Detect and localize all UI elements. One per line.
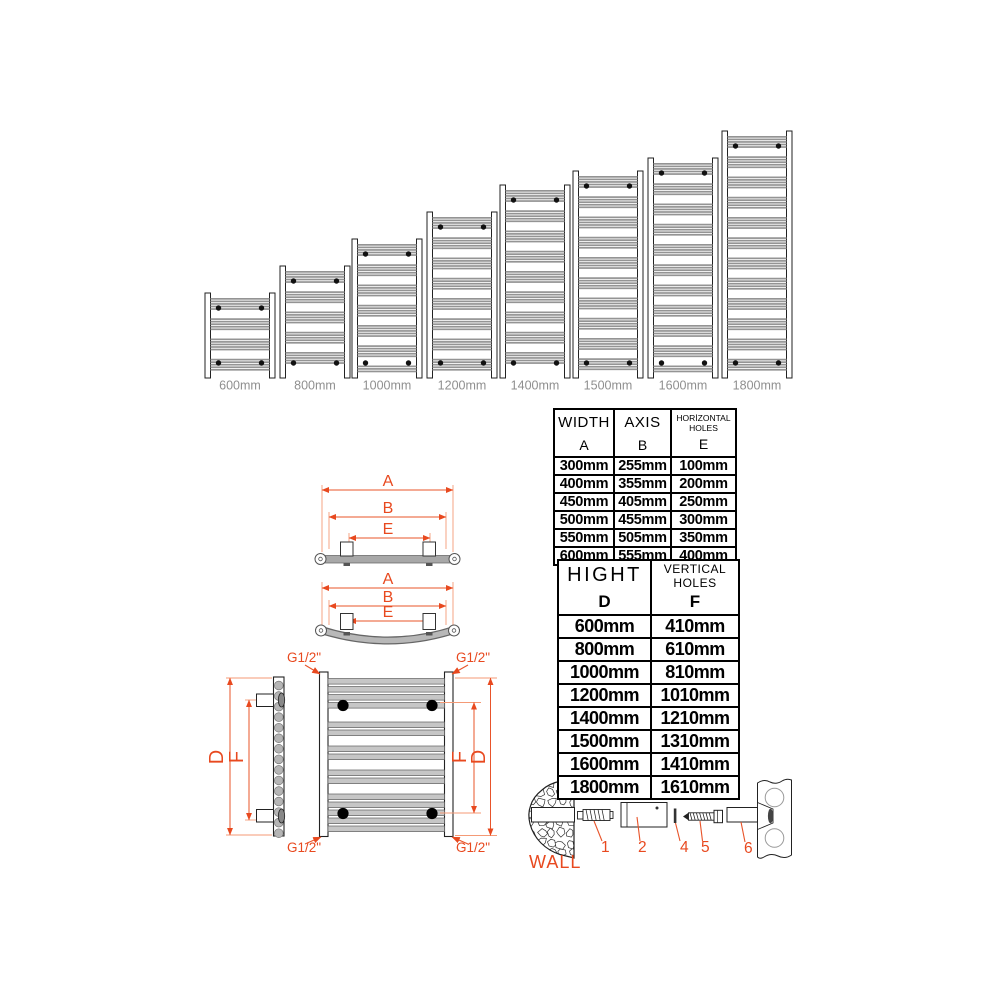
column-header: HORİZONTAL HOLESE (671, 409, 736, 457)
table-cell: 405mm (614, 493, 671, 511)
mounting-dot (627, 360, 632, 365)
mounting-dot (659, 360, 664, 365)
mounting-dot (702, 360, 707, 365)
radiator-size-label: 1000mm (363, 379, 412, 393)
radiator-size-label: 600mm (219, 379, 261, 393)
table-row: 1600mm1410mm (558, 753, 739, 776)
part-number-2: 2 (638, 839, 647, 856)
wall-bracket (257, 810, 274, 823)
mounting-dot (554, 197, 559, 202)
front-view-left-tube (320, 672, 329, 837)
wall-label: WALL (529, 852, 581, 872)
dim-label-b: B (383, 500, 394, 517)
part-wall-plug (578, 810, 614, 821)
column-header-letter: F (652, 592, 738, 612)
table-row: 600mm410mm (558, 615, 739, 638)
mounting-dot (733, 360, 738, 365)
wall-bracket (423, 542, 436, 556)
part-number-5: 5 (701, 839, 710, 856)
table-cell: 1310mm (651, 730, 739, 753)
table-cell: 1000mm (558, 661, 651, 684)
dim-label-a: A (383, 571, 394, 588)
table-row: 550mm505mm350mm (554, 529, 736, 547)
column-header-title: WIDTH (555, 414, 613, 431)
table-cell: 500mm (554, 511, 614, 529)
mounting-dot (216, 305, 221, 310)
radiator-size-label: 1200mm (438, 379, 487, 393)
column-header: HIGHTD (558, 560, 651, 615)
mounting-dot (426, 700, 437, 711)
mounting-dot (216, 360, 221, 365)
table-cell: 600mm (558, 615, 651, 638)
radiator-1800mm: 1800mm (722, 131, 792, 393)
radiator-size-label: 1600mm (659, 379, 708, 393)
table-row: 800mm610mm (558, 638, 739, 661)
column-header-letter: B (615, 437, 670, 453)
table-cell: 355mm (614, 475, 671, 493)
mounting-dot (584, 183, 589, 188)
mounting-dot (776, 143, 781, 148)
table-cell: 400mm (554, 475, 614, 493)
table-cell: 100mm (671, 457, 736, 475)
dim-label-e: E (383, 521, 394, 538)
table-row: 1000mm810mm (558, 661, 739, 684)
table-cell: 1800mm (558, 776, 651, 799)
mounting-dot (291, 360, 296, 365)
mounting-dot (481, 360, 486, 365)
mounting-dot (659, 170, 664, 175)
dim-label-e: E (383, 604, 394, 621)
column-header-title: HORİZONTAL HOLES (672, 414, 735, 433)
part-number-4: 4 (680, 839, 689, 856)
radiator-side-view-diagram: D F (206, 677, 285, 838)
column-header-title: HIGHT (559, 564, 650, 587)
table-cell: 450mm (554, 493, 614, 511)
table-cell: 550mm (554, 529, 614, 547)
radiator-size-label: 800mm (294, 379, 336, 393)
table-cell: 810mm (651, 661, 739, 684)
table-cell: 505mm (614, 529, 671, 547)
table-cell: 1200mm (558, 684, 651, 707)
mounting-dot (702, 170, 707, 175)
connection-size-label: G1/2" (456, 650, 490, 665)
column-header-letter: D (559, 592, 650, 612)
mounting-dot (337, 700, 348, 711)
radiator-1000mm: 1000mm (352, 239, 422, 393)
mounting-dot (406, 360, 411, 365)
mounting-dot (733, 143, 738, 148)
table-row: 1800mm1610mm (558, 776, 739, 799)
table-cell: 1010mm (651, 684, 739, 707)
wall-bracket (341, 542, 354, 556)
table-cell: 255mm (614, 457, 671, 475)
dim-label-d: D (468, 750, 490, 764)
column-header: VERTICAL HOLESF (651, 560, 739, 615)
column-header-letter: A (555, 437, 613, 453)
connection-size-label: G1/2" (287, 840, 321, 855)
mounting-dot (426, 808, 437, 819)
mounting-dot (406, 251, 411, 256)
table-row: 450mm405mm250mm (554, 493, 736, 511)
table-cell: 1210mm (651, 707, 739, 730)
mounting-dot (584, 360, 589, 365)
mounting-dot (776, 360, 781, 365)
dim-label-a: A (383, 473, 394, 490)
curved-rail-top-view-diagram: A B E (316, 571, 460, 641)
table-cell: 1410mm (651, 753, 739, 776)
mounting-dot (627, 183, 632, 188)
radiator-1500mm: 1500mm (573, 171, 643, 393)
mounting-dot (554, 360, 559, 365)
mounting-dot (337, 808, 348, 819)
table-cell: 1610mm (651, 776, 739, 799)
table-row: 400mm355mm200mm (554, 475, 736, 493)
spec-drawing: 600mm800mm1000mm1200mm1400mm1500mm1600mm… (0, 0, 1000, 1000)
straight-rail-top-view-diagram: A B E (315, 473, 460, 566)
part-number-6: 6 (744, 840, 753, 857)
radiator-size-lineup: 600mm800mm1000mm1200mm1400mm1500mm1600mm… (205, 131, 792, 393)
radiator-800mm: 800mm (280, 266, 350, 393)
mounting-dot (291, 278, 296, 283)
table-row: 500mm455mm300mm (554, 511, 736, 529)
mounting-dot (334, 278, 339, 283)
table-cell: 300mm (671, 511, 736, 529)
width-spec-table: WIDTHAAXISBHORİZONTAL HOLESE300mm255mm10… (553, 408, 737, 566)
table-cell: 800mm (558, 638, 651, 661)
table-cell: 300mm (554, 457, 614, 475)
column-header-letter: E (672, 436, 735, 452)
table-cell: 610mm (651, 638, 739, 661)
table-cell: 1400mm (558, 707, 651, 730)
table-cell: 250mm (671, 493, 736, 511)
radiator-size-label: 1400mm (511, 379, 560, 393)
towel-radiator-spec-sheet: 600mm800mm1000mm1200mm1400mm1500mm1600mm… (0, 0, 1000, 1000)
radiator-1400mm: 1400mm (500, 185, 570, 393)
mounting-dot (511, 360, 516, 365)
table-row: 1500mm1310mm (558, 730, 739, 753)
radiator-front-view-diagram: F D G1/2" G1/2" G1/2" G1/2" (287, 650, 497, 855)
wall-bracket (423, 614, 436, 630)
radiator-size-label: 1500mm (584, 379, 633, 393)
wall-drill-hole (532, 808, 575, 823)
mounting-dot (363, 251, 368, 256)
part-number-1: 1 (601, 839, 610, 856)
column-header: WIDTHA (554, 409, 614, 457)
radiator-1600mm: 1600mm (648, 158, 718, 393)
connection-size-label: G1/2" (456, 840, 490, 855)
mounting-dot (481, 224, 486, 229)
table-row: 300mm255mm100mm (554, 457, 736, 475)
part-bracket-sleeve (621, 803, 667, 828)
table-cell: 455mm (614, 511, 671, 529)
mounting-dot (363, 360, 368, 365)
table-cell: 410mm (651, 615, 739, 638)
column-header-title: AXIS (615, 414, 670, 431)
radiator-1200mm: 1200mm (427, 212, 497, 393)
mounting-dot (438, 224, 443, 229)
table-cell: 200mm (671, 475, 736, 493)
wall-bracket (257, 694, 274, 707)
mounting-dot (259, 360, 264, 365)
mounting-dot (334, 360, 339, 365)
radiator-600mm: 600mm (205, 293, 275, 393)
dim-label-d: D (206, 750, 228, 764)
wall-bracket (341, 614, 354, 630)
part-screw (683, 810, 723, 822)
connection-size-label: G1/2" (287, 650, 321, 665)
table-cell: 1500mm (558, 730, 651, 753)
radiator-size-label: 1800mm (733, 379, 782, 393)
mounting-dot (511, 197, 516, 202)
table-row: 1400mm1210mm (558, 707, 739, 730)
height-spec-table: HIGHTDVERTICAL HOLESF600mm410mm800mm610m… (557, 559, 740, 800)
mounting-dot (259, 305, 264, 310)
straight-rail-bar (317, 556, 458, 564)
dim-label-f: F (226, 751, 248, 763)
table-row: 1200mm1010mm (558, 684, 739, 707)
table-cell: 350mm (671, 529, 736, 547)
table-cell: 1600mm (558, 753, 651, 776)
part-pin (674, 809, 677, 824)
mounting-dot (438, 360, 443, 365)
column-header: AXISB (614, 409, 671, 457)
column-header-title: VERTICAL HOLES (652, 563, 738, 591)
